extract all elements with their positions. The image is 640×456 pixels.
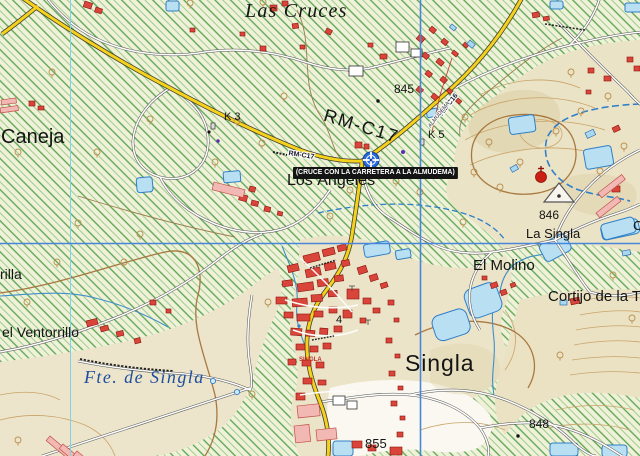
label-rm-c17-shield: RM-C17 (288, 150, 315, 161)
label-almudema: ALMUDEMA (428, 101, 452, 129)
label-las-cruces: Las Cruces (245, 1, 348, 21)
label-845: 845 (394, 83, 414, 95)
label-parcel-4: 4 (336, 315, 342, 326)
label-846: 846 (539, 209, 559, 221)
label-cut-right-edge: C (633, 219, 640, 232)
label-cortijo: Cortijo de la T (548, 289, 640, 304)
map-labels-layer: Las CrucesCanejaK 3845RM-C17RM-C17K 5RM-… (0, 0, 640, 456)
label-fte-de-singla: Fte. de Singla (84, 368, 205, 386)
label-rm-c17: RM-C17 (322, 106, 402, 146)
label-la-singla: La Singla (526, 227, 580, 240)
label-caneja: Caneja (1, 127, 64, 147)
label-rilla: rilla (0, 267, 22, 281)
label-855: 855 (365, 437, 387, 450)
label-ventorrillo: el Ventorrillo (2, 325, 79, 339)
label-848: 848 (529, 418, 549, 430)
label-singla: Singla (405, 352, 474, 375)
label-singla-street: SINGLA (299, 357, 322, 363)
junction-annotation-banner: (CRUCE CON LA CARRETERA A LA ALMUDEMA) (293, 167, 458, 179)
label-el-molino: El Molino (473, 258, 535, 273)
topographic-map: Las CrucesCanejaK 3845RM-C17RM-C17K 5RM-… (0, 0, 640, 456)
label-k5: K 5 (428, 130, 445, 141)
label-k3: K 3 (224, 112, 241, 123)
